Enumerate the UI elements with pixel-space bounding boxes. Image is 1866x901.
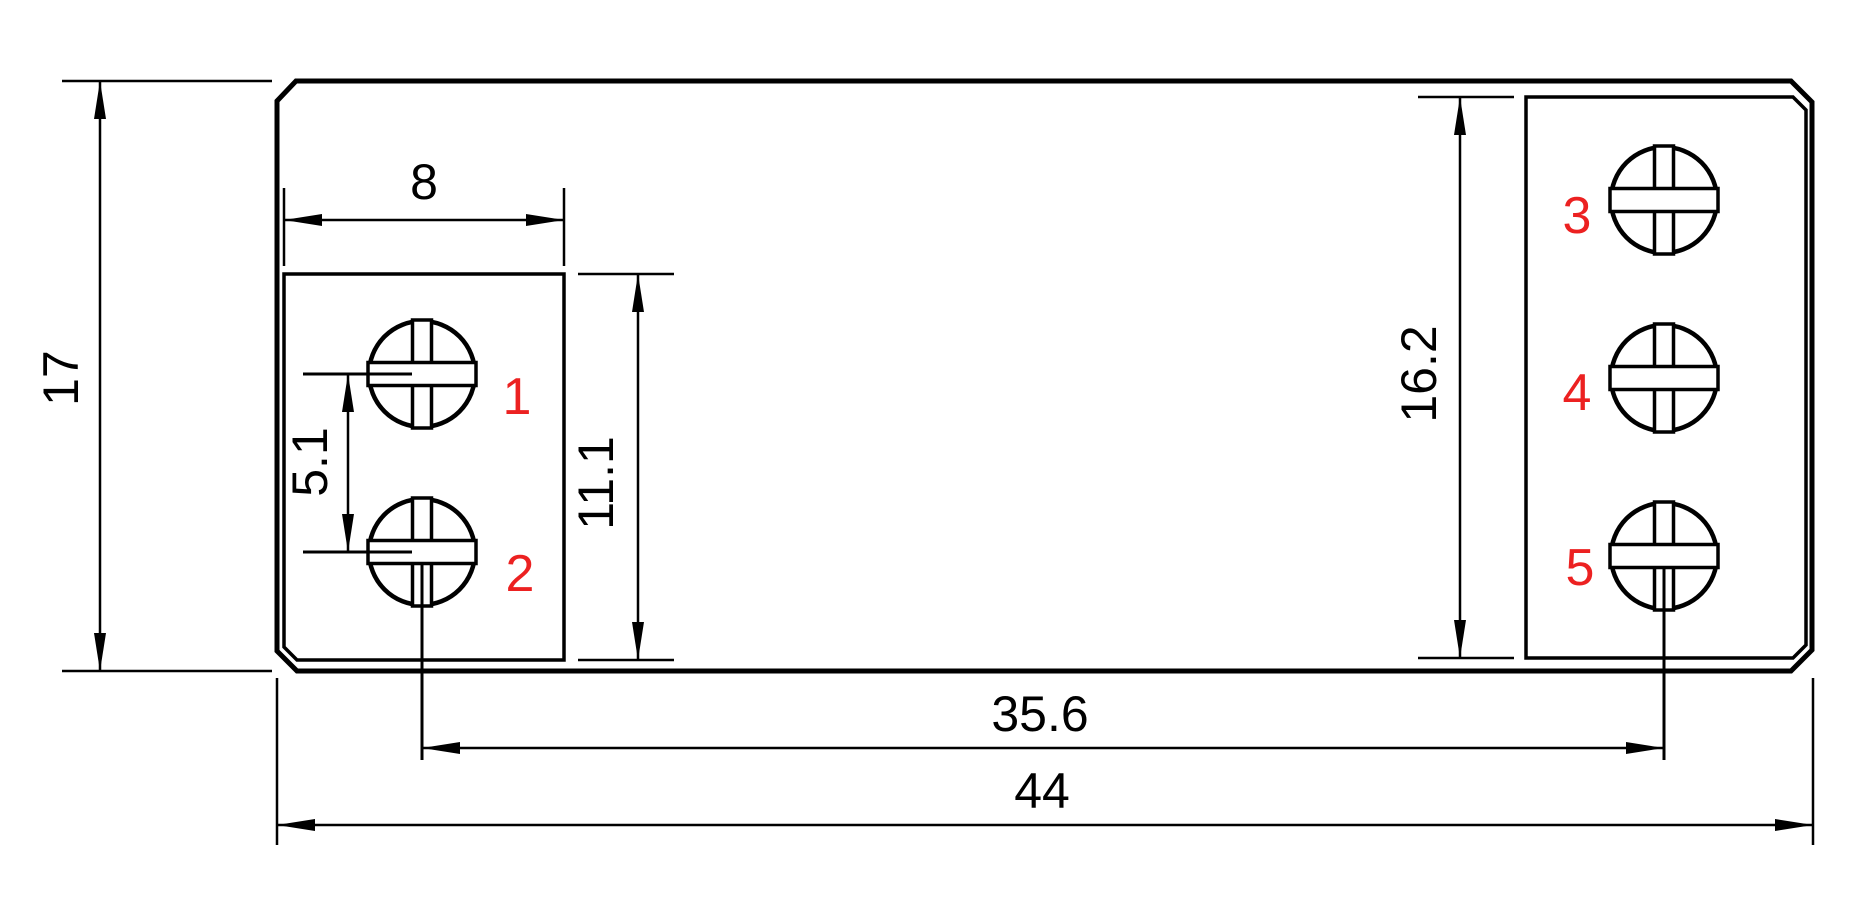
drawing-canvas: 17 8 5.1 11.1 16.2 35.6 [0,0,1866,901]
arrowhead-down [94,633,106,671]
screw-terminal-3 [1610,146,1718,254]
screw-terminal-2 [303,498,476,760]
arrowhead-up [632,274,644,312]
arrowhead-left [284,214,322,226]
dimension-right-block-height: 16.2 [1391,97,1514,658]
arrowhead-up [342,374,354,412]
terminal-label-3: 3 [1563,187,1592,245]
terminal-label-4: 4 [1563,364,1592,422]
arrowhead-down [342,514,354,552]
arrowhead-up [1454,97,1466,135]
terminal-label-1: 1 [503,368,532,426]
dimension-overall-height: 17 [33,81,272,671]
dimension-left-block-height: 11.1 [568,274,674,660]
screw-3-horizontal-slot [1610,189,1718,212]
terminal-label-5: 5 [1566,539,1595,597]
arrowhead-down [632,622,644,660]
screw-4-horizontal-slot [1610,367,1718,390]
dimension-label-11-1: 11.1 [568,436,624,530]
dimension-screw-pitch: 5.1 [282,374,354,552]
dimension-left-block-width: 8 [284,154,564,266]
arrowhead-left [277,819,315,831]
dimension-label-5-1: 5.1 [282,427,338,497]
arrowhead-down [1454,620,1466,658]
arrowhead-right [1775,819,1813,831]
dimension-screw-span: 35.6 [422,686,1664,754]
screw-terminal-4 [1610,324,1718,432]
dimension-label-16-2: 16.2 [1391,325,1447,422]
screw-5-horizontal-slot [1610,545,1718,568]
dimension-label-17: 17 [33,350,89,406]
arrowhead-right [1626,742,1664,754]
arrowhead-left [422,742,460,754]
screw-terminal-5 [1610,502,1718,760]
dimension-label-8: 8 [410,154,438,210]
dimension-label-35-6: 35.6 [991,686,1088,742]
arrowhead-right [526,214,564,226]
arrowhead-up [94,81,106,119]
screw-terminal-1 [303,320,476,428]
technical-drawing: 17 8 5.1 11.1 16.2 35.6 [0,0,1866,901]
dimension-label-44: 44 [1014,763,1070,819]
terminal-label-2: 2 [506,545,535,603]
